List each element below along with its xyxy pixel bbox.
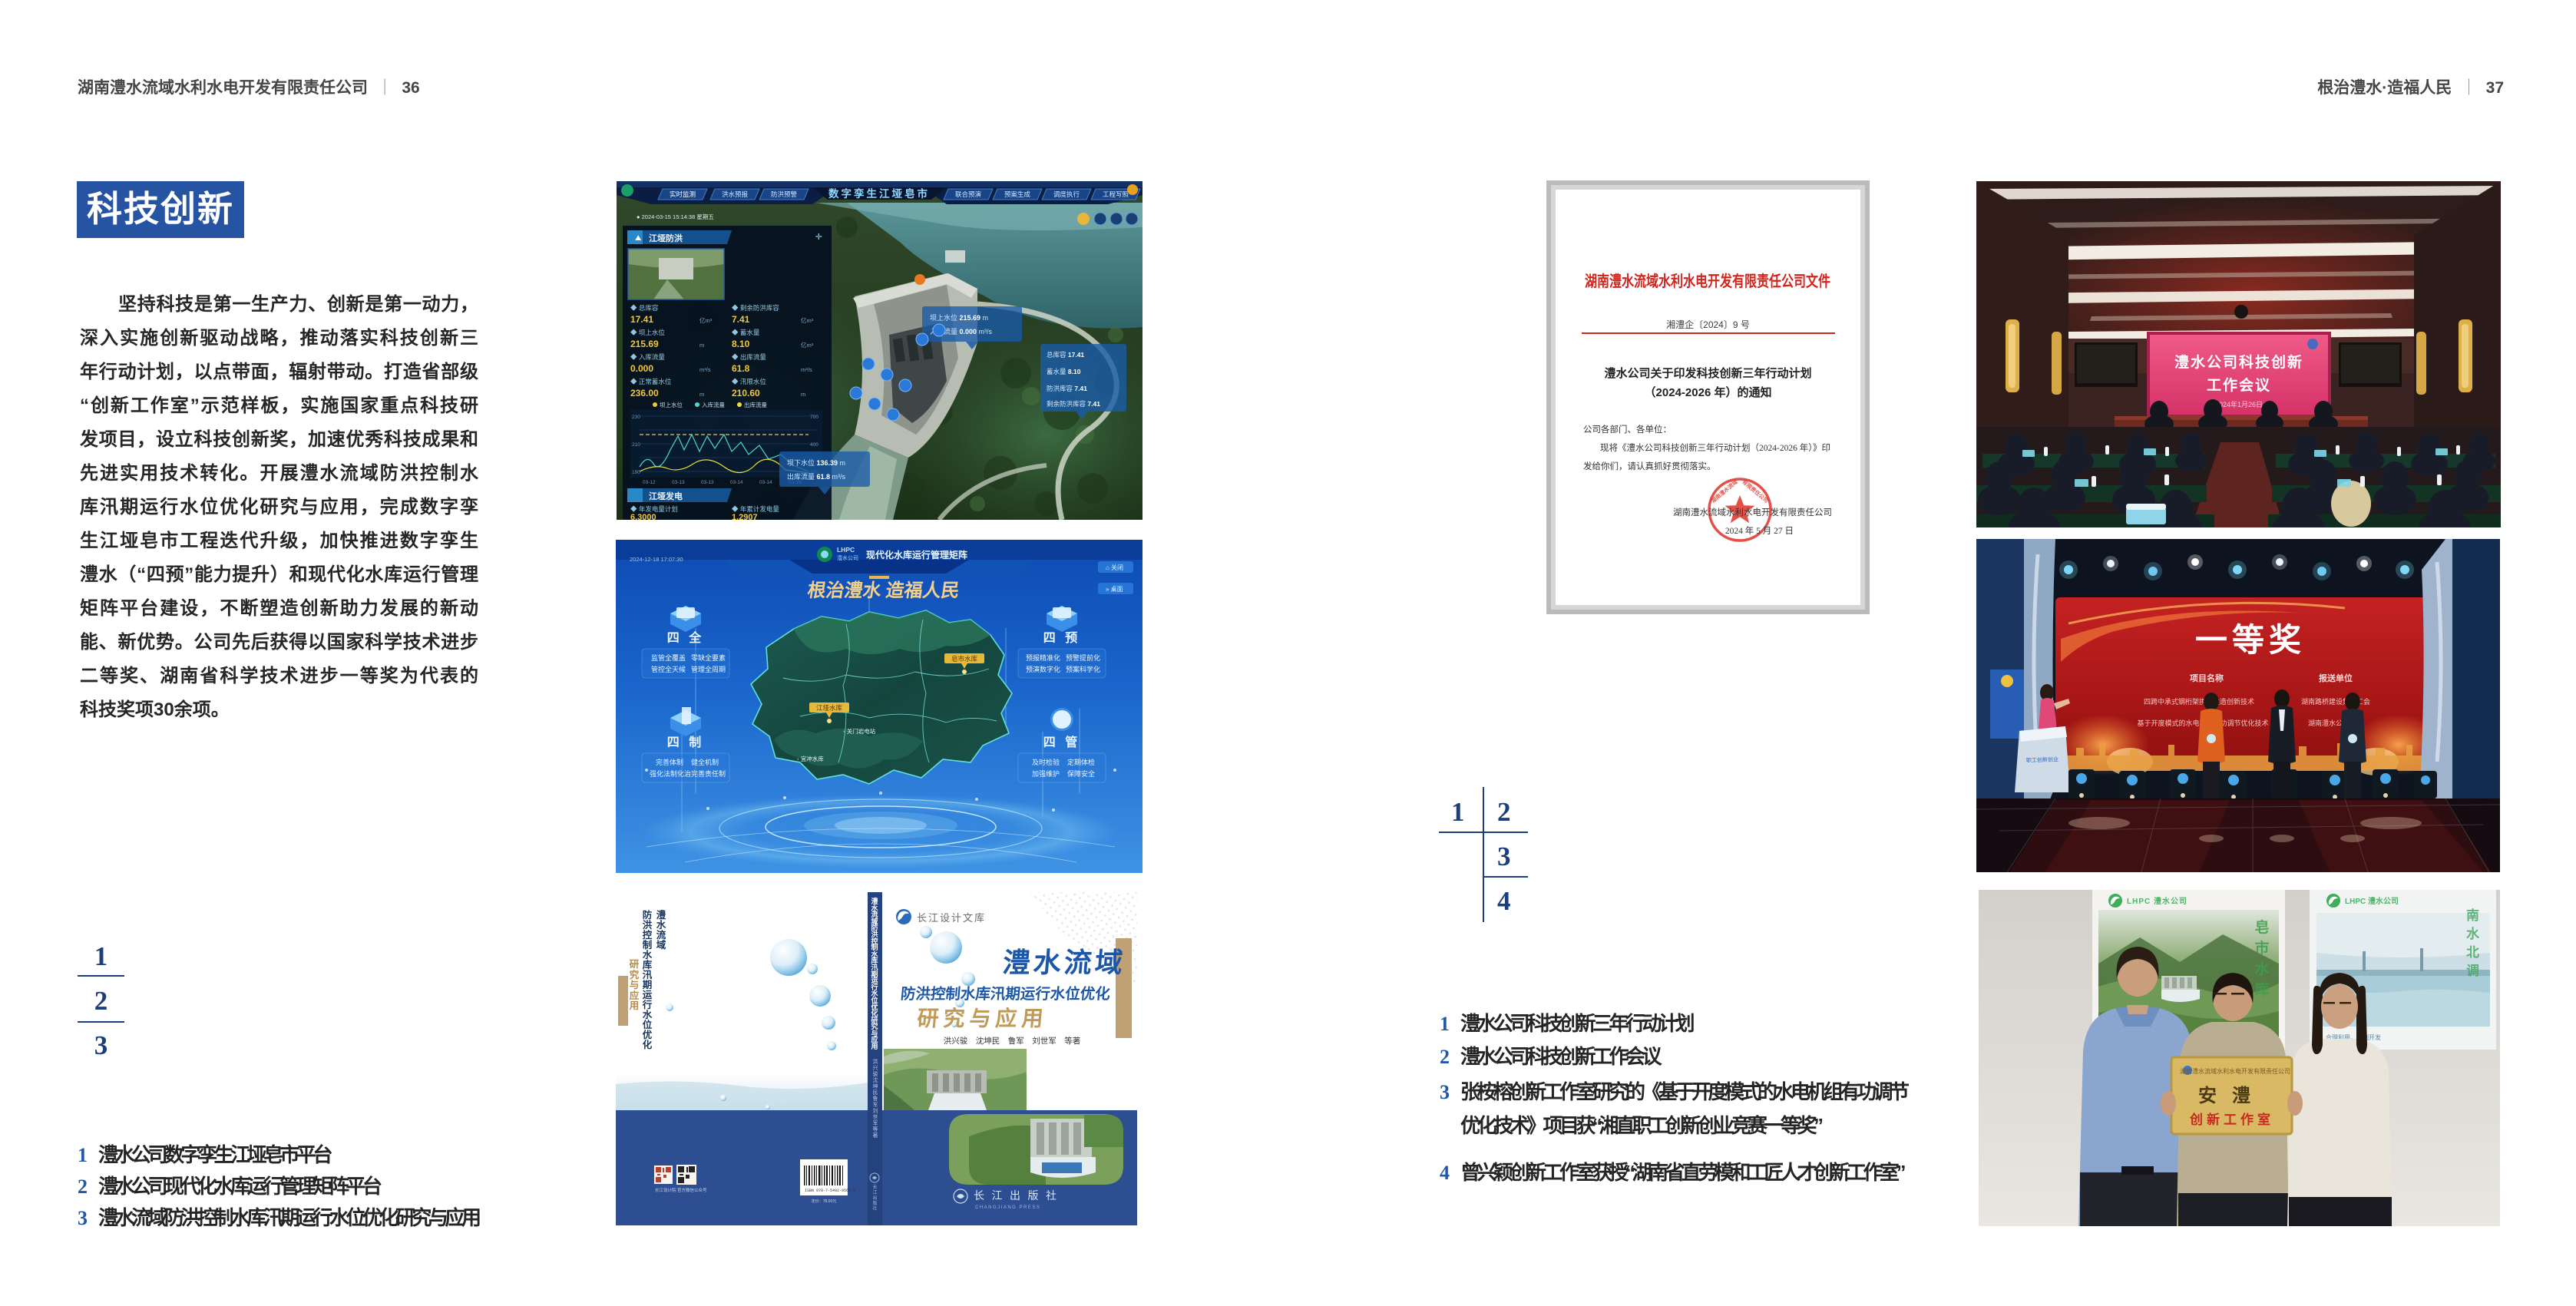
svg-text:亿m³: 亿m³: [699, 316, 713, 324]
svg-text:◦ 宜冲水库: ◦ 宜冲水库: [797, 755, 824, 762]
svg-text:强化法制化治: 强化法制化治: [650, 769, 691, 778]
svg-text:数字孪生江垭皂市: 数字孪生江垭皂市: [828, 187, 930, 200]
svg-text:加强维护: 加强维护: [1032, 769, 1060, 778]
svg-text:◆ 正常蓄水位: ◆ 正常蓄水位: [630, 378, 672, 385]
svg-text:澧水公司科技创新: 澧水公司科技创新: [2174, 353, 2303, 371]
svg-text:工程写照: 工程写照: [1103, 190, 1129, 198]
svg-text:坝上水位 215.69 m: 坝上水位 215.69 m: [930, 313, 988, 322]
svg-text:坝上水位: 坝上水位: [660, 401, 683, 408]
svg-text:江垭水库: 江垭水库: [816, 704, 843, 712]
svg-text:澧水公司: 澧水公司: [837, 554, 858, 561]
svg-text:健全机制: 健全机制: [691, 758, 719, 766]
svg-text:LHPC 澧水公司: LHPC 澧水公司: [2127, 896, 2187, 906]
svg-text:◆ 坝上水位: ◆ 坝上水位: [630, 329, 665, 336]
svg-text:✛: ✛: [815, 233, 822, 242]
svg-text:LHPC 澧水公司: LHPC 澧水公司: [2345, 896, 2399, 906]
svg-text:ISBN 978-7-5492-9565-8: ISBN 978-7-5492-9565-8: [805, 1189, 855, 1193]
svg-text:出库流量 61.8 m³/s: 出库流量 61.8 m³/s: [787, 472, 846, 481]
svg-text:江垭防洪: 江垭防洪: [649, 233, 683, 243]
svg-text:入库流量: 入库流量: [702, 401, 725, 408]
svg-text:管理全周期: 管理全周期: [691, 665, 726, 673]
svg-text:零缺全要素: 零缺全要素: [691, 653, 726, 662]
svg-text:◆ 剩余防洪库容: ◆ 剩余防洪库容: [732, 304, 779, 312]
svg-text:700: 700: [810, 415, 818, 420]
svg-text:◆ 年发电量计划: ◆ 年发电量计划: [630, 505, 678, 513]
svg-text:亿m³: 亿m³: [801, 316, 814, 324]
svg-text:m: m: [699, 342, 704, 349]
svg-text:保障安全: 保障安全: [1067, 769, 1095, 778]
svg-text:防洪预警: 防洪预警: [771, 190, 798, 198]
svg-text:190: 190: [632, 470, 640, 475]
svg-text:6.3000: 6.3000: [630, 513, 656, 520]
svg-text:400: 400: [810, 442, 818, 448]
svg-text:m³/s: m³/s: [699, 366, 711, 373]
svg-text:湖南澧水流域水利水电开发有限责任公司: 湖南澧水流域水利水电开发有限责任公司: [2180, 1067, 2290, 1075]
svg-text:2024-12-18 17:07:30: 2024-12-18 17:07:30: [630, 556, 683, 563]
svg-text:洪水预报: 洪水预报: [722, 190, 749, 198]
svg-text:四跨中承式钢桁架拱桥建造创新技术: 四跨中承式钢桁架拱桥建造创新技术: [2144, 697, 2254, 706]
svg-text:四 预: 四 预: [1043, 631, 1080, 645]
svg-text:03-12: 03-12: [643, 480, 656, 485]
svg-text:61.8: 61.8: [732, 363, 750, 374]
svg-text:CHANGJIANG PRESS: CHANGJIANG PRESS: [975, 1205, 1040, 1210]
svg-text:完善体制: 完善体制: [656, 758, 683, 766]
svg-text:03-14: 03-14: [730, 480, 743, 485]
svg-text:亿m³: 亿m³: [801, 341, 814, 349]
svg-text:一等奖: 一等奖: [2195, 623, 2306, 659]
svg-text:8.10: 8.10: [732, 339, 750, 349]
svg-text:⌂ 关闭: ⌂ 关闭: [1106, 564, 1123, 571]
svg-text:215.69: 215.69: [630, 339, 659, 349]
svg-text:监管全覆盖: 监管全覆盖: [651, 653, 686, 662]
svg-text:预报精准化: 预报精准化: [1026, 653, 1060, 662]
svg-text:长江设计院 官方微信公众号: 长江设计院 官方微信公众号: [655, 1187, 707, 1193]
svg-text:m: m: [699, 391, 704, 398]
svg-text:210.60: 210.60: [732, 388, 760, 398]
svg-text:◆ 出库流量: ◆ 出库流量: [732, 353, 766, 361]
svg-text:◆ 年累计发电量: ◆ 年累计发电量: [732, 505, 779, 513]
svg-text:项目名称: 项目名称: [2190, 673, 2224, 683]
svg-text:236.00: 236.00: [630, 388, 659, 398]
svg-text:联合预演: 联合预演: [955, 190, 982, 198]
svg-text:◦ 关门岩电站: ◦ 关门岩电站: [843, 727, 876, 735]
svg-text:03-13: 03-13: [701, 480, 714, 485]
svg-text:定价：78.00元: 定价：78.00元: [812, 1199, 837, 1204]
svg-text:» 桌面: » 桌面: [1106, 585, 1123, 593]
svg-text:现代化水库运行管理矩阵: 现代化水库运行管理矩阵: [866, 549, 967, 560]
svg-text:实时监测: 实时监测: [670, 190, 696, 198]
svg-text:剩余防洪库容 7.41: 剩余防洪库容 7.41: [1047, 400, 1100, 408]
svg-text:⛰: ⛰: [635, 234, 642, 243]
svg-text:四 管: 四 管: [1043, 735, 1080, 749]
svg-text:报送单位: 报送单位: [2319, 673, 2353, 683]
svg-text:长江设计文库: 长江设计文库: [917, 912, 986, 924]
svg-text:蓄水量 8.10: 蓄水量 8.10: [1047, 368, 1081, 375]
svg-text:0.000: 0.000: [630, 363, 653, 374]
svg-text:2024年1月26日: 2024年1月26日: [2215, 400, 2263, 408]
svg-text:◆ 汛限水位: ◆ 汛限水位: [732, 378, 766, 385]
svg-text:◆ 入库流量: ◆ 入库流量: [630, 353, 665, 361]
svg-text:调度执行: 调度执行: [1053, 190, 1080, 198]
svg-text:17.41: 17.41: [630, 314, 653, 325]
svg-text:定期体检: 定期体检: [1067, 758, 1095, 766]
svg-text:预案科学化: 预案科学化: [1066, 665, 1100, 673]
svg-text:及时检验: 及时检验: [1032, 758, 1060, 766]
svg-text:210: 210: [632, 442, 640, 448]
svg-text:03-13: 03-13: [672, 480, 685, 485]
svg-text:完善责任制: 完善责任制: [691, 769, 726, 778]
svg-text:◆ 蓄水量: ◆ 蓄水量: [732, 329, 760, 336]
svg-text:◆ 总库容: ◆ 总库容: [630, 304, 659, 312]
svg-text:长 江 出 版 社: 长 江 出 版 社: [974, 1190, 1059, 1202]
svg-text:总库容 17.41: 总库容 17.41: [1047, 351, 1084, 359]
svg-text:四 制: 四 制: [667, 736, 704, 749]
svg-text:澧水流域: 澧水流域: [1001, 947, 1126, 978]
svg-text:坝下水位 136.39 m: 坝下水位 136.39 m: [787, 458, 845, 467]
svg-text:m³/s: m³/s: [801, 366, 812, 373]
svg-text:防洪控制水库汛期运行水位优化: 防洪控制水库汛期运行水位优化: [900, 985, 1111, 1003]
svg-text:m: m: [801, 391, 805, 398]
svg-text:03-14: 03-14: [759, 480, 772, 485]
svg-text:安澧: 安澧: [2198, 1085, 2266, 1106]
svg-text:根治澧水 造福人民: 根治澧水 造福人民: [806, 580, 961, 601]
svg-text:1.2907: 1.2907: [732, 513, 758, 520]
svg-text:预演数字化: 预演数字化: [1026, 665, 1060, 673]
svg-text:出库流量: 出库流量: [744, 401, 767, 408]
svg-text:230: 230: [632, 415, 640, 420]
svg-text:管控全天候: 管控全天候: [651, 665, 686, 673]
svg-text:江垭发电: 江垭发电: [649, 491, 683, 501]
svg-text:研究与应用: 研究与应用: [916, 1006, 1049, 1030]
svg-text:创新工作室: 创新工作室: [2189, 1112, 2274, 1127]
svg-text:工作会议: 工作会议: [2207, 376, 2271, 394]
svg-text:LHPC: LHPC: [837, 546, 855, 554]
svg-text:皂市水库: 皂市水库: [951, 655, 978, 663]
svg-text:洪兴骏 沈坤民 鲁军 刘世军 等著: 洪兴骏 沈坤民 鲁军 刘世军 等著: [944, 1036, 1081, 1046]
svg-text:防洪库容 7.41: 防洪库容 7.41: [1047, 385, 1087, 392]
svg-text:四 全: 四 全: [667, 630, 704, 645]
svg-text:7.41: 7.41: [732, 314, 750, 325]
svg-text:预案生成: 预案生成: [1004, 190, 1031, 198]
svg-text:● 2024-03-15 15:14:38 星期五: ● 2024-03-15 15:14:38 星期五: [637, 213, 714, 220]
svg-text:预警提前化: 预警提前化: [1066, 653, 1100, 662]
